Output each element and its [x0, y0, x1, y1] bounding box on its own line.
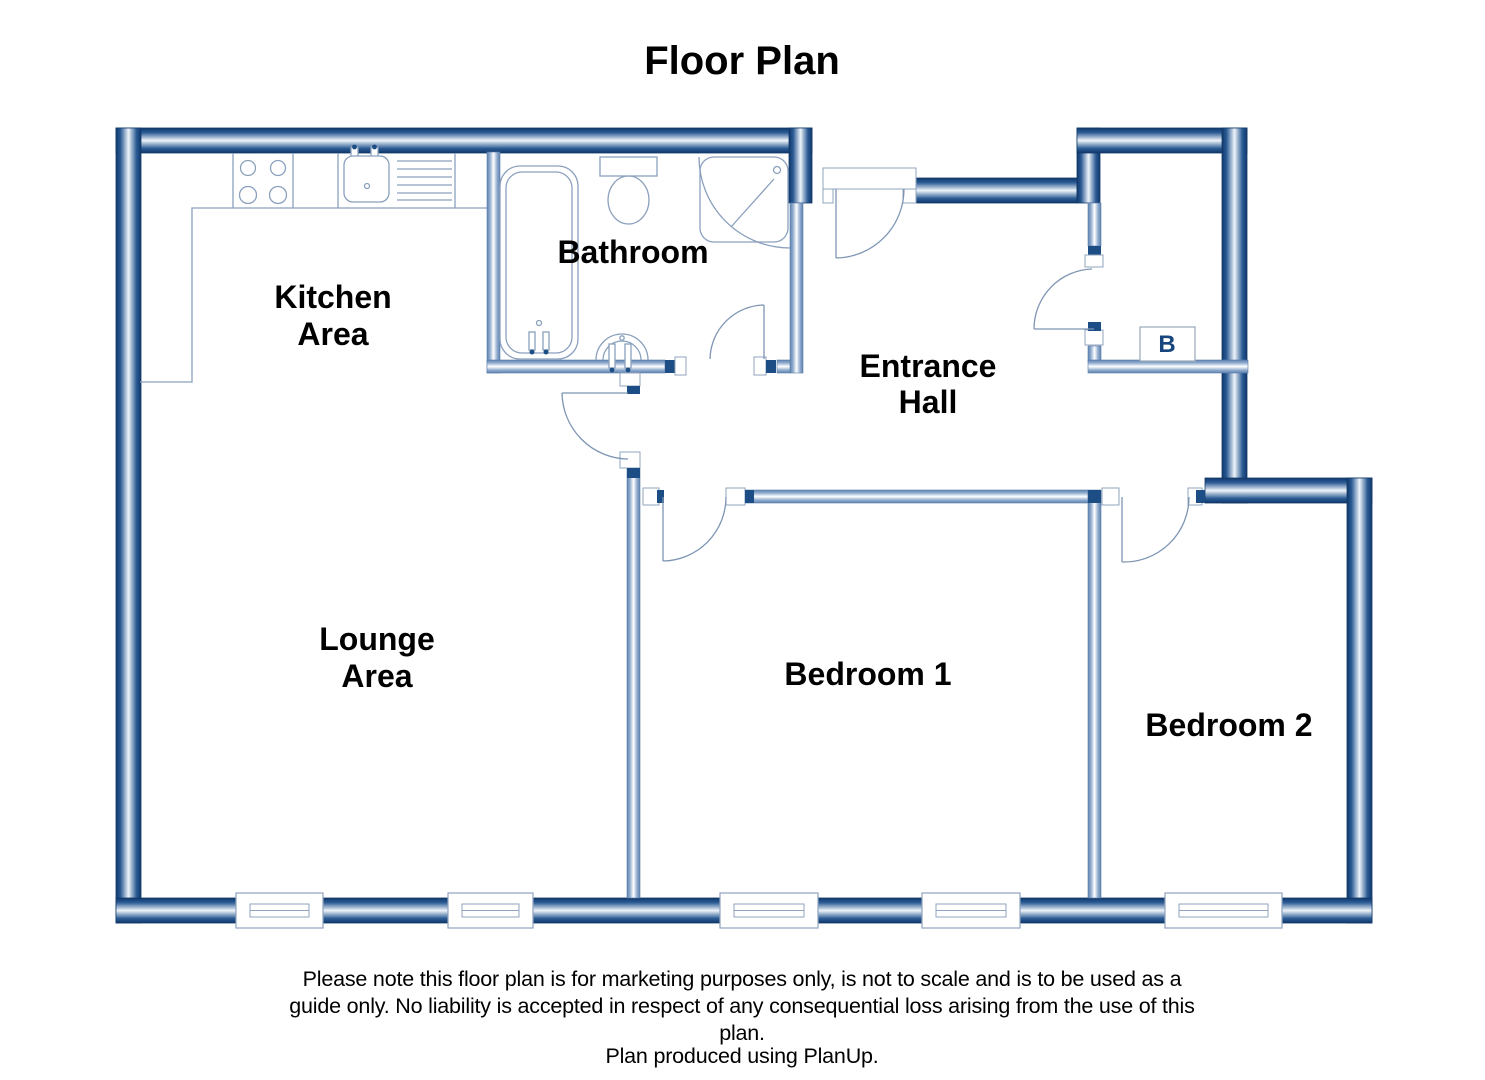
- bedroom2-door-jamb-left: [1102, 488, 1119, 505]
- window-lounge-1: [236, 893, 323, 928]
- wall-cupboard-left-upper: [1088, 203, 1101, 246]
- wall-bathroom-right: [790, 203, 803, 373]
- wall-cupboard-top: [1077, 128, 1247, 153]
- wall-right-upper: [1222, 128, 1247, 503]
- bedroom2-door: [1122, 497, 1189, 562]
- label-entrance-hall-line1: Entrance: [860, 348, 997, 384]
- label-bathroom: Bathroom: [557, 234, 708, 270]
- disclaimer-line1: Please note this floor plan is for marke…: [303, 967, 1182, 991]
- window-bedroom1-1: [720, 893, 818, 928]
- toilet-icon: [600, 157, 657, 224]
- disclaimer-line3: plan.: [719, 1021, 765, 1045]
- bathroom-door-jamb-right: [754, 357, 766, 375]
- boiler-box: B: [1140, 327, 1195, 361]
- entrance-jamb-left: [823, 189, 833, 203]
- wall-step-bathroom-right: [789, 128, 812, 203]
- wall-bedroom1-bedroom2: [1088, 490, 1101, 898]
- bedroom1-door-jamb-right: [726, 488, 745, 505]
- wall-hall-bedroom1: [745, 490, 1088, 503]
- window-bedroom2: [1165, 893, 1282, 928]
- wall-cupboard-left-lower: [1088, 346, 1101, 362]
- window-lounge-2: [448, 893, 533, 928]
- wall-left: [116, 128, 141, 923]
- bedroom1-door-jamb-left: [643, 488, 659, 505]
- bathroom-door-jamb-left: [675, 357, 686, 375]
- disclaimer-line4: Plan produced using PlanUp.: [605, 1044, 878, 1068]
- hall-door-jamb-top: [620, 373, 640, 386]
- floor-plan-page: B Kitchen Area Bathroom: [0, 0, 1485, 1080]
- floor-plan-canvas: B Kitchen Area Bathroom: [0, 0, 1485, 1080]
- wall-right-lower: [1347, 478, 1372, 923]
- wall-bathroom-bottom: [487, 360, 665, 373]
- cupboard-door: [1034, 269, 1094, 329]
- entrance-jamb-right: [903, 189, 916, 203]
- window-bedroom1-2: [922, 893, 1020, 928]
- wall-lounge-bedroom1: [627, 468, 640, 898]
- page-title: Floor Plan: [644, 39, 840, 83]
- hall-door-jamb-bottom: [620, 452, 640, 468]
- boiler-label: B: [1158, 331, 1175, 358]
- wall-bathroom-left: [487, 152, 500, 373]
- label-entrance-hall-line2: Hall: [899, 384, 958, 420]
- bedroom1-door: [663, 497, 726, 561]
- label-kitchen-line1: Kitchen: [274, 279, 391, 315]
- outer-walls: [116, 128, 1372, 923]
- hob-icon: [240, 161, 287, 204]
- door-jambs: [620, 168, 1205, 505]
- shower-icon: [699, 157, 790, 248]
- label-kitchen-line2: Area: [297, 316, 368, 352]
- lounge-hall-door: [562, 393, 628, 459]
- wall-cupboard-bottom: [1088, 360, 1248, 373]
- entrance-door: [836, 189, 904, 258]
- entrance-door-recess: [823, 168, 916, 189]
- bathroom-door: [710, 305, 764, 359]
- label-bedroom1: Bedroom 1: [784, 656, 951, 692]
- disclaimer: Please note this floor plan is for marke…: [289, 967, 1194, 1068]
- disclaimer-line2: guide only. No liability is accepted in …: [289, 994, 1194, 1018]
- label-lounge-line2: Area: [341, 658, 412, 694]
- wall-top-main: [116, 128, 812, 153]
- wall-hall-top: [915, 178, 1077, 203]
- wall-bathroom-corner-stub: [777, 360, 790, 373]
- cupboard-door-jamb-bottom: [1085, 330, 1103, 345]
- cupboard-door-jamb-top: [1085, 255, 1103, 267]
- label-bedroom2: Bedroom 2: [1145, 707, 1312, 743]
- drainer-icon: [397, 161, 452, 200]
- label-lounge-line1: Lounge: [319, 621, 435, 657]
